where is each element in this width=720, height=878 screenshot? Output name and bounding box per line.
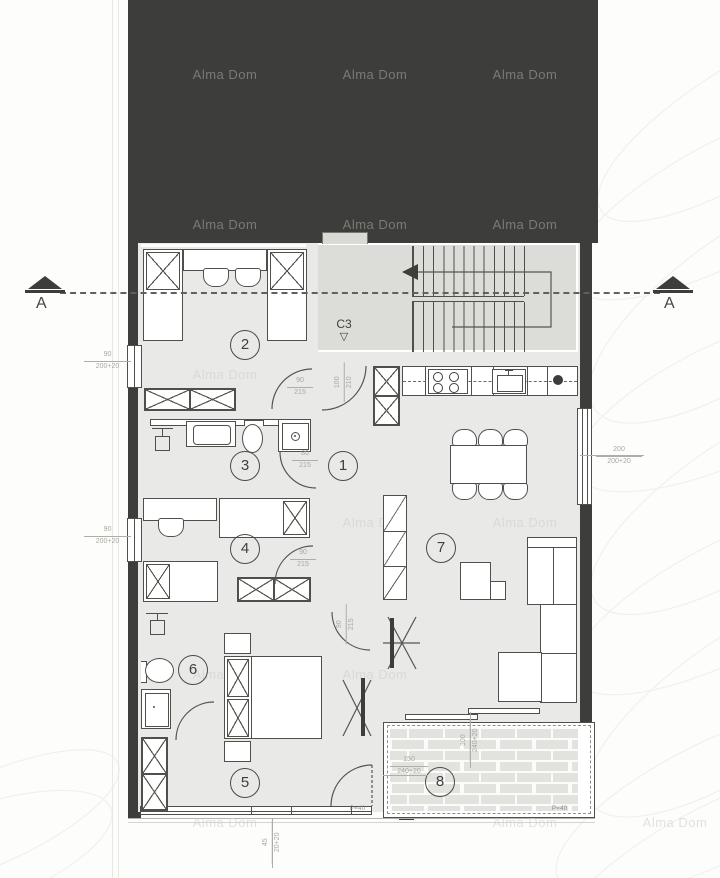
dim-window-left-lower: 90 200+20 <box>84 526 131 547</box>
chair <box>158 518 184 537</box>
section-line <box>60 292 660 294</box>
pillow <box>283 501 307 535</box>
wardrobe-cell <box>238 578 274 601</box>
room-label-1: 1 <box>328 451 358 481</box>
room-label-6: 6 <box>178 655 208 685</box>
stair-landing-tab <box>322 232 368 244</box>
boiler-symbol <box>553 375 563 385</box>
hall-closet <box>373 366 400 426</box>
pillow <box>227 659 249 697</box>
stair-core-label: C3 <box>333 317 355 331</box>
closet-cell <box>374 367 399 396</box>
dim-bottom-window: 45 20+20 <box>262 820 283 864</box>
sliding-door-terrace <box>468 708 540 714</box>
watermark: Alma Dom <box>320 515 430 530</box>
shower <box>141 689 171 729</box>
wall-gap-line <box>141 244 306 247</box>
pillow <box>270 252 304 290</box>
watermark: Alma Dom <box>620 815 720 830</box>
washer-connection <box>150 620 165 635</box>
shower <box>278 419 311 452</box>
room-label-3: 3 <box>230 451 260 481</box>
toilet <box>242 424 263 453</box>
room-label-2: 2 <box>230 330 260 360</box>
stair-landing-line <box>412 296 524 297</box>
watermark: Alma Dom <box>320 67 430 82</box>
washer-pipe <box>157 613 158 621</box>
chair <box>452 429 477 446</box>
wardrobe-cell <box>274 578 310 601</box>
kitchen-sink <box>492 369 526 394</box>
dim-door-bedroom5: 90 215 <box>336 604 357 644</box>
washer-pipe <box>162 428 163 437</box>
tv-cabinet <box>383 495 407 600</box>
wardrobe <box>237 577 311 602</box>
nightstand <box>224 633 251 654</box>
sofa-chaise <box>540 604 577 703</box>
stove <box>428 369 468 394</box>
room-label-7: 7 <box>426 533 456 563</box>
wardrobe <box>144 388 236 411</box>
chair <box>478 429 503 446</box>
wardrobe-cell <box>142 738 167 774</box>
pillow <box>146 252 180 290</box>
dim-door-entry: 100 210 <box>334 362 355 402</box>
dining-table <box>450 445 527 484</box>
nightstand <box>224 741 251 762</box>
watermark: Alma Dom <box>320 217 430 232</box>
room-label-8: 8 <box>425 767 455 797</box>
section-marker-left-label: A <box>36 295 47 313</box>
dim-door-bedroom2: 90 215 <box>287 377 313 398</box>
stair-flight-lower <box>412 302 525 352</box>
washbasin <box>186 421 236 447</box>
parapet-label-terrace: P=40 <box>552 806 567 812</box>
section-marker-right-bar <box>653 290 693 293</box>
room-label-4: 4 <box>230 534 260 564</box>
dim-terrace-width: 150 240+20 <box>390 756 428 777</box>
chair <box>503 429 528 446</box>
section-marker-left-bar <box>25 290 65 293</box>
washer-connection <box>155 436 170 451</box>
page-guide-line <box>118 0 119 878</box>
watermark: Alma Dom <box>170 217 280 232</box>
window-band-bottom <box>140 806 372 815</box>
coffee-table <box>460 562 491 600</box>
closet-cell <box>374 396 399 425</box>
pillow <box>227 699 249 737</box>
wall-exterior-right <box>578 243 592 408</box>
dim-door-bathroom3: 80 215 <box>292 450 318 471</box>
page-guide-line <box>112 0 113 878</box>
wardrobe-cell <box>142 774 167 810</box>
watermark: Alma Dom <box>470 67 580 82</box>
sofa <box>527 537 577 605</box>
toilet <box>145 658 174 683</box>
washer-pipe <box>152 428 173 429</box>
window-right <box>577 408 592 505</box>
section-marker-right-label: A <box>664 295 675 313</box>
dim-window-left-upper: 90 200+20 <box>84 351 131 372</box>
stair-landing-line <box>412 301 524 302</box>
wardrobe <box>141 737 168 811</box>
stair-entry-marker: ▽ <box>334 330 354 343</box>
dim-terrace-depth: 300 240+20 <box>460 718 481 762</box>
wall-exterior-right <box>578 505 592 722</box>
stair-flight-upper <box>412 246 525 296</box>
upper-building-mass <box>128 0 598 243</box>
washer-pipe <box>146 613 168 614</box>
wardrobe-cell <box>145 389 190 410</box>
watermark: Alma Dom <box>470 515 580 530</box>
section-marker-right-icon <box>656 276 690 289</box>
dim-door-bedroom4: 90 215 <box>290 549 316 570</box>
section-marker-left-icon <box>28 276 62 289</box>
watermark: Alma Dom <box>170 67 280 82</box>
watermark: Alma Dom <box>320 667 430 682</box>
watermark: Alma Dom <box>170 367 280 382</box>
pillow <box>146 564 170 599</box>
dim-window-right: 200 200+20 <box>596 446 642 467</box>
parapet-label-room5: P=40 <box>350 806 365 812</box>
ottoman <box>498 652 542 702</box>
room-label-5: 5 <box>230 768 260 798</box>
watermark: Alma Dom <box>470 217 580 232</box>
floor-plan-page: { "watermark": { "text": "Alma Dom" }, "… <box>0 0 720 878</box>
wardrobe-cell <box>190 389 235 410</box>
coffee-table <box>490 581 506 600</box>
chair <box>235 268 261 287</box>
chair <box>203 268 229 287</box>
